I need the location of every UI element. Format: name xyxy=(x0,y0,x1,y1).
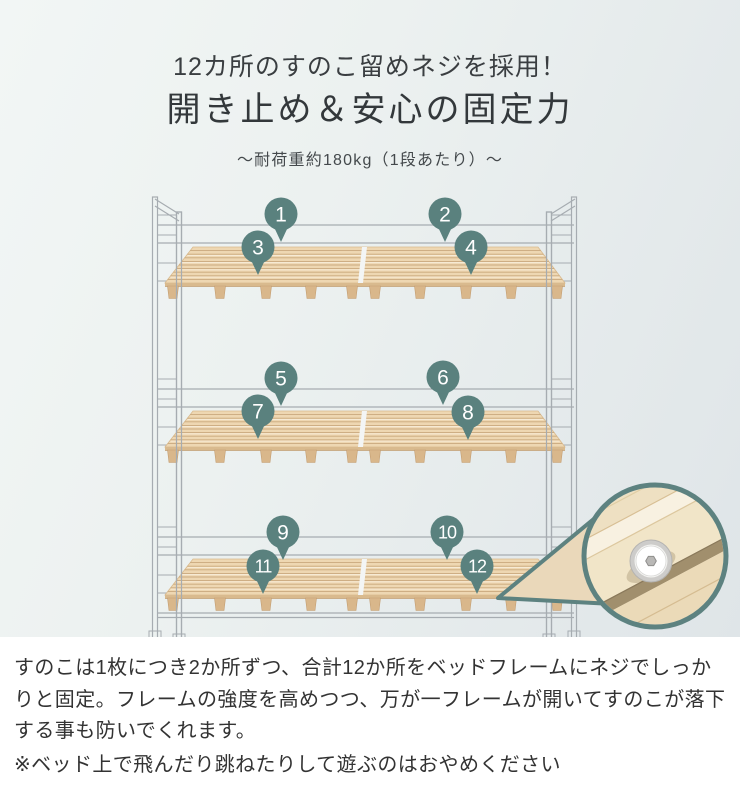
feature-main-title: 開き止め＆安心の固定力 xyxy=(0,82,740,131)
load-capacity-subtitle: ～耐荷重約180kg（1段あたり）～ xyxy=(0,146,740,170)
description-text: すのこは1枚につき2か所ずつ、合計12か所をベッドフレームにネジでしっかりと固定… xyxy=(14,653,726,748)
caution-note: ※ベッド上で飛んだり跳ねたりして遊ぶのはおやめください xyxy=(14,750,726,782)
feature-lead-title: 12カ所のすのこ留めネジを採用！ xyxy=(0,47,740,83)
description-section: すのこは1枚につき2か所ずつ、合計12か所をベッドフレームにネジでしっかりと固定… xyxy=(0,637,740,796)
